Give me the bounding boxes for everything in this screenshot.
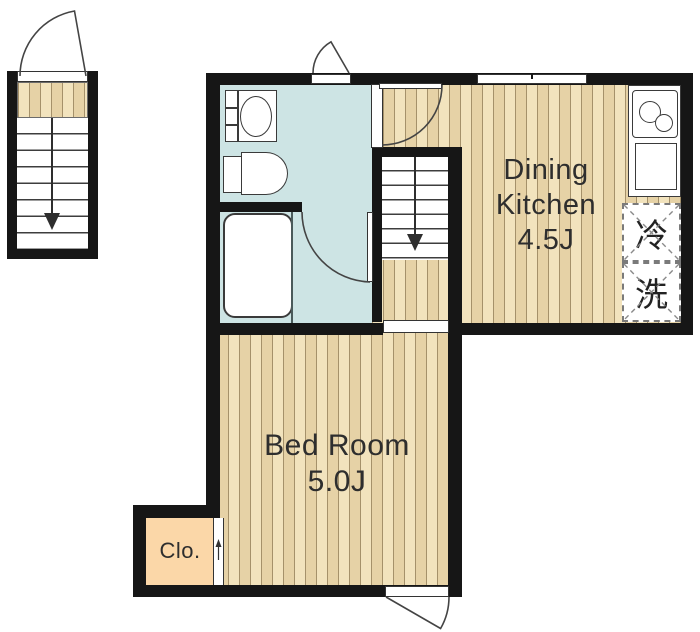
floor-plan: 冷 洗 Dining Kitchen 4.5J Bed Room 5.0J Cl… — [0, 0, 700, 632]
vanity-shelf-line — [226, 124, 237, 126]
wall — [7, 249, 98, 259]
entrance-door-swing — [313, 42, 349, 73]
dk-door-opening — [371, 84, 383, 148]
wall-right — [681, 73, 693, 335]
bedroom-exterior-door-sill — [385, 586, 449, 597]
wall-washroom-dk — [372, 147, 382, 322]
wall — [88, 71, 98, 259]
wall-left — [206, 73, 220, 518]
toilet-bowl — [241, 152, 288, 195]
dining-kitchen-label: Dining Kitchen 4.5J — [446, 153, 646, 258]
bedroom-area-label: 5.0J — [237, 464, 437, 500]
entry-door-swing — [20, 11, 86, 76]
entrance-door-sill — [311, 74, 351, 84]
entry-landing — [17, 82, 88, 118]
closet-sliding-door — [213, 518, 224, 585]
dk-door-leaf — [379, 83, 442, 89]
vanity-shelf-line — [226, 107, 237, 109]
sink-bowl — [240, 96, 272, 137]
washing-machine-label: 洗 — [635, 268, 668, 316]
entry-door-sill — [17, 71, 88, 82]
bathtub — [223, 213, 293, 318]
bedroom-door-swing — [386, 597, 449, 629]
stair-run-line — [414, 157, 416, 235]
washing-machine-slot: 洗 — [622, 262, 681, 322]
stove-burner-small — [655, 114, 673, 132]
window-center-tick — [531, 74, 533, 79]
closet-label-text: Clo. — [146, 539, 214, 563]
dk-area-label: 4.5J — [446, 223, 646, 258]
wall — [7, 71, 17, 259]
bath-door-leaf — [367, 212, 373, 282]
dk-bedroom-threshold — [383, 320, 449, 333]
wall-washroom-bath — [206, 202, 302, 212]
bed-room-label: Bed Room 5.0J — [237, 428, 437, 500]
bath-partition — [291, 212, 293, 323]
stair-run-line — [51, 118, 53, 214]
dk-label-line2: Kitchen — [446, 188, 646, 223]
wall-dk-bottom — [449, 323, 693, 335]
wall-top — [206, 73, 693, 85]
closet-label: Clo. — [146, 539, 214, 563]
wall-closet-left — [133, 505, 146, 597]
vanity-divider — [237, 90, 239, 142]
wall-bath-bottom — [206, 323, 383, 335]
wall-closet-top — [133, 505, 220, 518]
toilet-tank — [223, 156, 242, 193]
dk-label-line1: Dining — [446, 153, 646, 188]
bedroom-label-line1: Bed Room — [237, 428, 437, 464]
